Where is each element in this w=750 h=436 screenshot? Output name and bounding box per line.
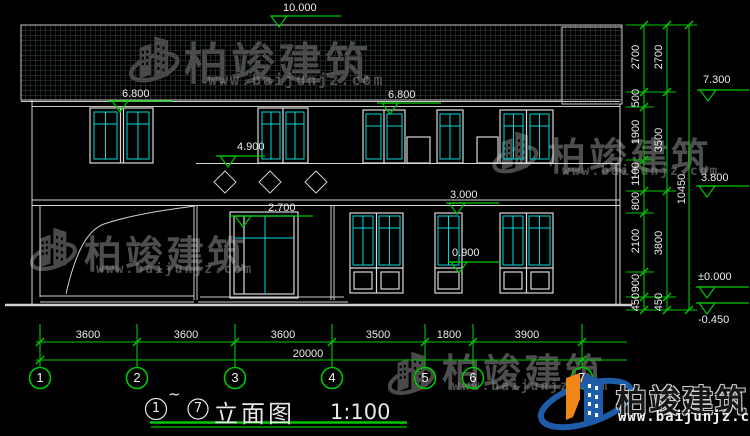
eave-elevation-label: 6.800 <box>122 88 150 100</box>
door-head-elevation-label: 2.700 <box>268 202 296 214</box>
dim-label: 1800 <box>419 329 479 341</box>
window-sill-elevation-label: 0.900 <box>452 247 480 259</box>
right-floor-elevation-label: 3.800 <box>701 172 729 184</box>
eave-elevation-label: 6.800 <box>388 89 416 101</box>
dim-label: 3500 <box>348 329 408 341</box>
drawing-title: 立面图 <box>214 394 295 429</box>
canopy-elevation-label: 4.900 <box>237 141 265 153</box>
axis-bubble-label: 3 <box>224 371 246 385</box>
site-logo-url: www.baijunjz.com <box>618 409 750 425</box>
window-head-elevation-label: 3.000 <box>450 189 478 201</box>
dim-label: 2700 <box>653 27 665 87</box>
axis-bubble-label: 6 <box>462 371 484 385</box>
dim-label: 3900 <box>497 329 557 341</box>
dim-label: 3600 <box>58 329 118 341</box>
zero-elevation-label: ±0.000 <box>698 271 732 283</box>
axis-bubble-label: 1 <box>29 371 51 385</box>
dim-label: 450 <box>630 272 642 332</box>
axis-bubble-label: 4 <box>321 371 343 385</box>
total-dim-label: 20000 <box>278 348 338 360</box>
dim-label: 3500 <box>653 110 665 170</box>
minus-elevation-label: -0.450 <box>698 314 729 326</box>
dim-label: 3800 <box>653 213 665 273</box>
drawing-scale: 1:100 <box>330 400 391 424</box>
dim-label: 450 <box>653 272 665 332</box>
title-tilde: ~ <box>168 385 181 403</box>
labels: 10.000 6.800 6.800 4.900 2.700 3.000 0.9… <box>0 0 750 436</box>
ridge-elevation-label: 10.000 <box>283 2 317 14</box>
axis-bubble-label: 5 <box>414 371 436 385</box>
title-start-axis: 1 <box>146 401 166 416</box>
elevation-drawing: 柏竣建筑 www.baijunjz.com 柏竣建筑 www.baijunjz.… <box>0 0 750 436</box>
right-eave-elevation-label: 7.300 <box>703 74 731 86</box>
dim-label: 10450 <box>676 159 688 219</box>
axis-bubble-label: 2 <box>126 371 148 385</box>
dim-label: 3600 <box>156 329 216 341</box>
dim-label: 3600 <box>253 329 313 341</box>
axis-bubble-label: 7 <box>571 371 593 385</box>
title-end-axis: 7 <box>188 401 208 416</box>
